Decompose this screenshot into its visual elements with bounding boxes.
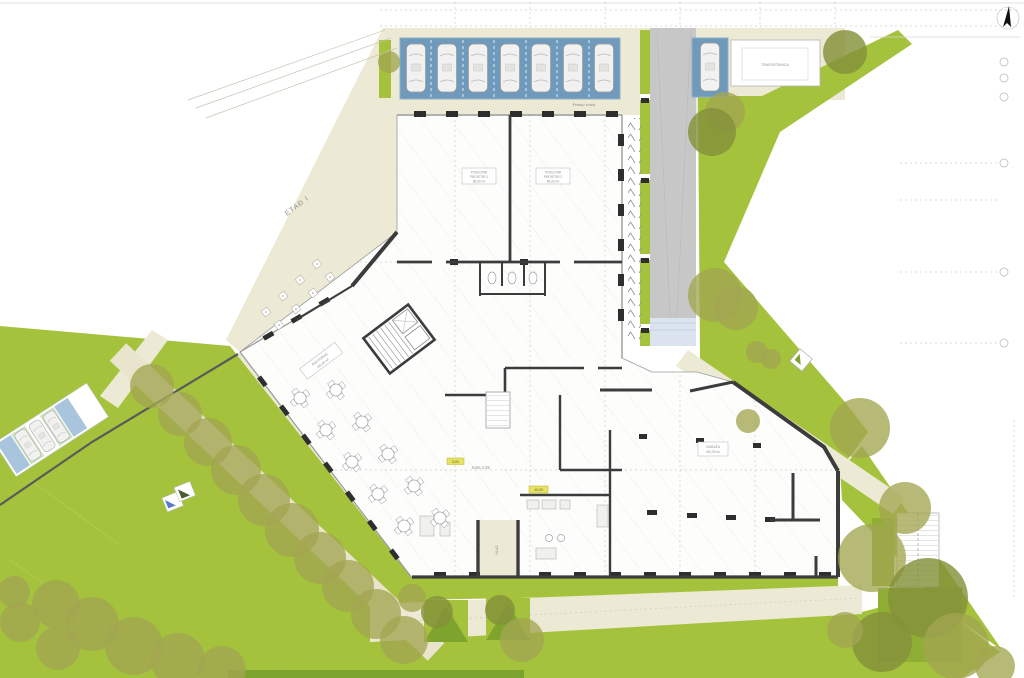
svg-text:PROSTOR 2: PROSTOR 2 [544, 175, 563, 179]
svg-text:84,20 m²: 84,20 m² [547, 179, 560, 183]
car [564, 44, 583, 92]
room-label-garage: GARAŽA [706, 444, 721, 449]
car [469, 44, 488, 92]
ramp-hatch-strip [628, 118, 641, 340]
car [407, 44, 426, 92]
site-plan: TRAFOSTANICA [0, 0, 1024, 678]
secondary-stair [486, 392, 510, 428]
ramp-landing [650, 318, 696, 346]
single-garage [692, 38, 728, 97]
trafo-label: TRAFOSTANICA [761, 63, 789, 67]
room-label-shop1: POSLOVNI [471, 171, 487, 175]
car [438, 44, 457, 92]
svg-text:420,00 m²: 420,00 m² [706, 450, 720, 454]
svg-text:0,00: 0,00 [452, 460, 459, 464]
svg-text:±0,00: ±0,00 [534, 488, 543, 492]
kota-label: Kota 2,92 [472, 465, 491, 470]
car [501, 44, 520, 92]
road-green-strip [640, 30, 650, 346]
svg-text:86,50 m²: 86,50 m² [473, 179, 486, 183]
transformer-station: TRAFOSTANICA [731, 40, 820, 86]
entry-label: ULAZ [495, 545, 499, 555]
north-arrow-icon [997, 6, 1019, 29]
svg-text:PROSTOR 1: PROSTOR 1 [470, 175, 489, 179]
car [532, 44, 551, 92]
car [701, 43, 720, 91]
bottom-green-strip [228, 670, 524, 678]
room-label-shop2: POSLOVNI [545, 171, 561, 175]
access-label: Pristup vozila [573, 103, 596, 107]
grid-bubbles [1000, 58, 1008, 347]
parking-canopy [400, 38, 620, 99]
car [595, 44, 614, 92]
